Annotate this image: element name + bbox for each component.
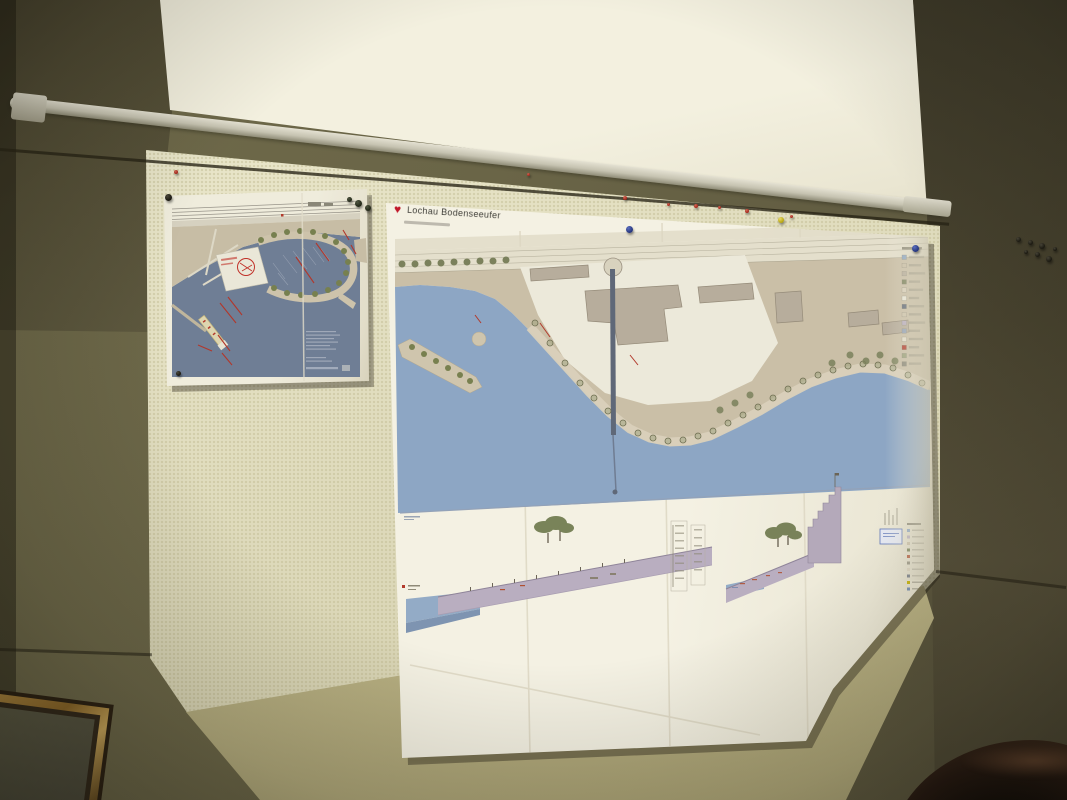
pin-dark-green bbox=[355, 200, 362, 207]
picture-frame-corner bbox=[0, 686, 114, 800]
map-rail-bracket bbox=[11, 92, 48, 123]
pin-blue bbox=[912, 245, 919, 252]
pin-black bbox=[165, 194, 172, 201]
pin-black bbox=[176, 371, 181, 376]
pin-blue bbox=[626, 226, 633, 233]
pin-dark-green bbox=[365, 205, 371, 211]
pin-red bbox=[667, 203, 670, 206]
pin-red bbox=[623, 196, 627, 200]
wall-groove-left bbox=[0, 648, 152, 656]
cross-section-a bbox=[402, 516, 712, 633]
small-plan-drawing bbox=[158, 185, 373, 390]
pin-dark bbox=[1046, 256, 1052, 262]
small-site-plan-sheet bbox=[158, 185, 373, 390]
picture-frame-canvas bbox=[0, 705, 95, 800]
heart-logo-icon: ♥ bbox=[394, 203, 402, 215]
pin-dark bbox=[1028, 240, 1033, 245]
pin-red bbox=[745, 209, 749, 213]
wall-left-edge bbox=[0, 0, 16, 800]
pin-dark bbox=[1016, 237, 1021, 242]
pin-dark bbox=[1053, 247, 1057, 251]
pin-red bbox=[718, 206, 721, 209]
pin-dark-green bbox=[347, 197, 352, 202]
pin-red bbox=[527, 173, 530, 176]
pin-red bbox=[694, 204, 698, 208]
pin-yellow bbox=[778, 217, 784, 223]
pin-red bbox=[790, 215, 793, 218]
photo-scene: ♥ Lochau Bodenseeufer bbox=[0, 0, 1067, 800]
pin-dark bbox=[1024, 250, 1028, 254]
pin-red bbox=[174, 170, 178, 174]
pin-dark bbox=[1039, 243, 1045, 249]
pin-dark bbox=[1035, 252, 1040, 257]
